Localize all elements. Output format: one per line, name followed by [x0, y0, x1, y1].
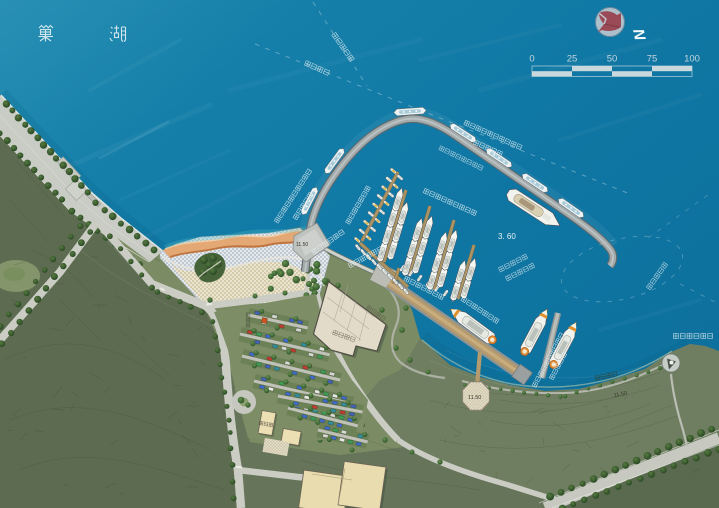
svg-text:75: 75 [647, 54, 658, 65]
svg-text:0: 0 [529, 54, 534, 65]
svg-text:25: 25 [567, 54, 578, 65]
svg-text:3. 60: 3. 60 [498, 232, 516, 241]
svg-text:11.50: 11.50 [296, 242, 308, 248]
svg-text:11.50: 11.50 [468, 395, 481, 401]
svg-text:100: 100 [684, 54, 700, 65]
svg-text:50: 50 [607, 54, 618, 65]
